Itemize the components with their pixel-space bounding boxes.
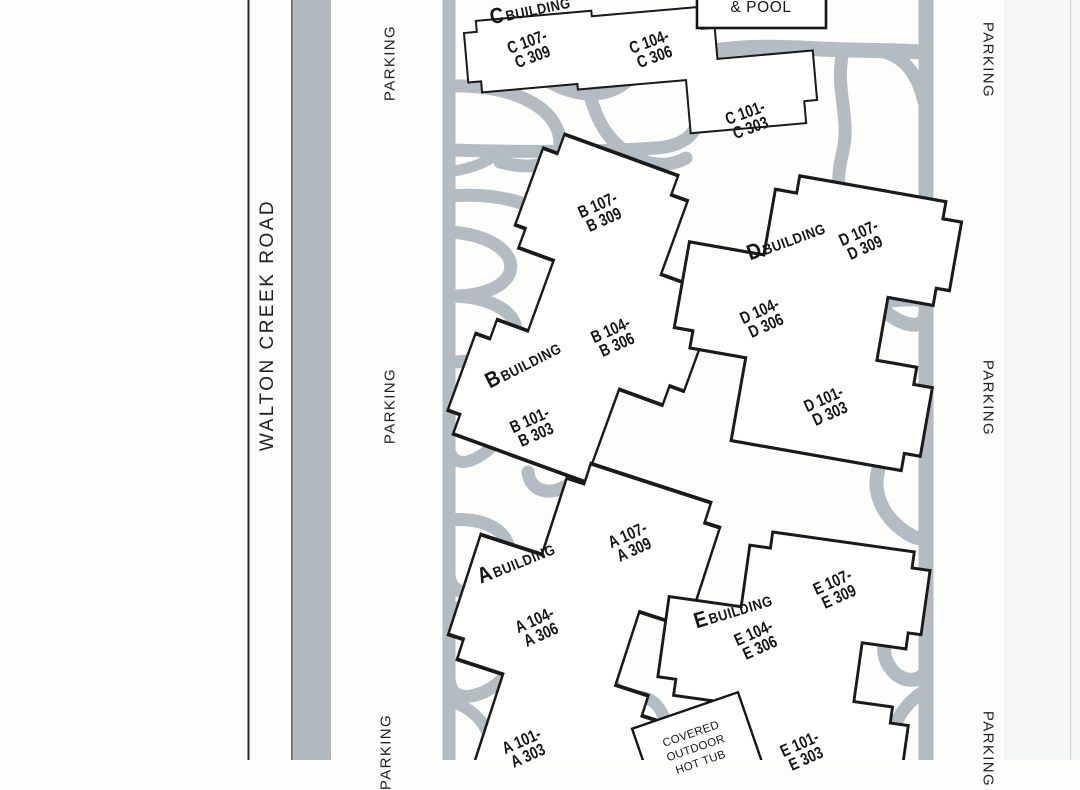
site-map: WALTON CREEK ROAD PARKING PARKING PARKIN… [0, 0, 1080, 760]
scan-edge-region [1004, 0, 1080, 760]
road-left-boundary-line [248, 0, 250, 760]
road-curb-line [291, 0, 293, 760]
site-map-graphics [0, 0, 1080, 760]
road-strip [291, 0, 331, 760]
scan-edge-line [1070, 0, 1071, 760]
building-footprints [410, 0, 964, 760]
pool-box [697, 0, 826, 28]
